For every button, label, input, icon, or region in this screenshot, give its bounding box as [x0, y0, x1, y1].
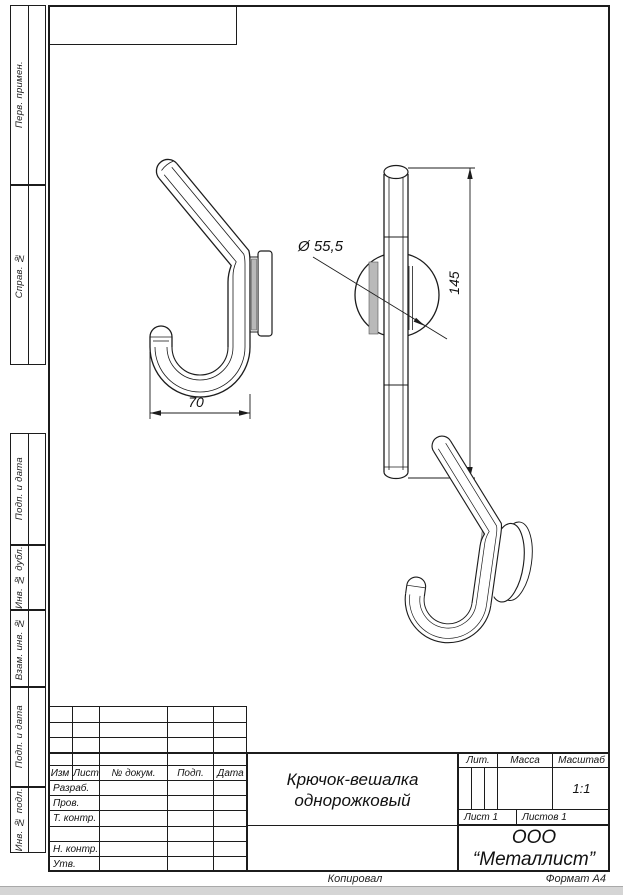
tb-cell	[168, 706, 214, 723]
tb-lit-label: Лит.	[466, 755, 489, 766]
tb-scale-header: Масштаб	[553, 753, 610, 768]
margin-empty-cell	[29, 788, 45, 852]
isometric-view	[400, 434, 548, 653]
tb-mass-value-cell	[498, 768, 553, 810]
dim-diameter-value: Ø 55,5	[297, 238, 344, 255]
front-view: 70	[150, 159, 272, 419]
tb-row-label: Пров.	[53, 798, 79, 809]
tb-cell	[168, 738, 214, 753]
tb-scale-label: Масштаб	[558, 755, 605, 766]
scale-value: 1:1	[572, 781, 590, 796]
tb-cell	[100, 781, 168, 796]
bottom-strip	[0, 886, 623, 895]
tb-cell	[214, 811, 247, 827]
tb-row-label: Утв.	[53, 859, 76, 870]
tb-cell	[48, 706, 73, 723]
tb-row-razrab: Разраб.	[48, 781, 100, 796]
plate-edge-shading	[369, 262, 378, 334]
tb-cell	[100, 827, 168, 842]
tb-cell	[100, 706, 168, 723]
tb-cell	[168, 796, 214, 811]
tb-cell	[214, 796, 247, 811]
tb-row-utv: Утв.	[48, 857, 100, 872]
company-line1: ООО	[512, 827, 556, 849]
tb-row-prov: Пров.	[48, 796, 100, 811]
tb-cell	[100, 738, 168, 753]
tb-header-izm: Изм	[48, 766, 73, 781]
sheet-value: Лист 1	[464, 812, 498, 823]
tb-cell	[168, 811, 214, 827]
part-name-cell: Крючок-вешалка однорожковый	[247, 753, 458, 826]
tb-cell	[214, 781, 247, 796]
sheets-value: Листов 1	[522, 812, 567, 823]
margin-label-cell: Инв. № подл.	[11, 788, 29, 852]
format-label: Формат А4	[470, 873, 606, 885]
dimension-diameter	[313, 257, 447, 339]
tb-lit-subcell	[485, 768, 498, 810]
dim-arrow	[150, 410, 161, 415]
tb-cell	[168, 723, 214, 738]
tb-row-label: Т. контр.	[53, 813, 96, 824]
tb-cell	[73, 723, 100, 738]
tb-cell	[214, 754, 247, 766]
tb-row-tkontr: Т. контр.	[48, 811, 100, 827]
tb-mass-label: Масса	[510, 755, 540, 766]
tb-header-data: Дата	[214, 766, 247, 781]
tb-row-nkontr: Н. контр.	[48, 842, 100, 857]
dim-arrow	[467, 168, 472, 179]
tb-lit-subcell	[472, 768, 485, 810]
margin-label: Подп. и дата	[14, 705, 25, 768]
dim-width-value: 70	[188, 394, 204, 410]
tb-cell	[214, 738, 247, 753]
tb-header-label: Изм	[51, 768, 70, 779]
tb-scale-value-cell: 1:1	[553, 768, 610, 810]
tb-cell	[168, 754, 214, 766]
tb-cell	[168, 842, 214, 857]
tb-cell	[168, 827, 214, 842]
margin-label: Инв. № подл.	[14, 788, 25, 851]
drawing-views: 70 Ø 55,5 145	[0, 0, 623, 705]
tb-cell	[100, 857, 168, 872]
tb-cell	[48, 754, 73, 766]
tb-cell	[73, 754, 100, 766]
tb-cell	[100, 723, 168, 738]
plate-shading	[252, 259, 257, 330]
tb-cell	[48, 723, 73, 738]
tb-header-list: Лист	[73, 766, 100, 781]
title-block: Изм Лист № докум. Подп. Дата Разраб. Про…	[48, 706, 610, 872]
tb-header-label: № докум.	[111, 768, 155, 779]
tb-row-label: Н. контр.	[53, 844, 98, 855]
tb-header-ndokum: № докум.	[100, 766, 168, 781]
tb-row-label: Разраб.	[53, 783, 89, 794]
company-cell: ООО “Металлист”	[458, 825, 610, 872]
tb-cell	[100, 811, 168, 827]
part-name-line1: Крючок-вешалка	[287, 769, 419, 790]
copied-label: Копировал	[270, 873, 440, 885]
designation-cell	[247, 825, 458, 872]
tb-cell	[214, 857, 247, 872]
part-name-line2: однорожковый	[294, 790, 410, 811]
tb-cell	[100, 754, 168, 766]
tb-header-label: Лист	[73, 768, 99, 779]
tb-cell	[100, 842, 168, 857]
plate-outline	[258, 251, 272, 336]
tb-header-label: Дата	[217, 768, 243, 779]
tb-cell	[214, 706, 247, 723]
tb-cell	[168, 857, 214, 872]
tb-header-podp: Подп.	[168, 766, 214, 781]
tb-cell	[48, 738, 73, 753]
hook-tip-cap	[150, 326, 172, 337]
tb-lit-subcell	[458, 768, 472, 810]
company-line2: “Металлист”	[473, 849, 595, 871]
tb-cell	[100, 796, 168, 811]
tb-header-label: Подп.	[177, 768, 204, 779]
tb-cell	[73, 738, 100, 753]
side-view: Ø 55,5 145	[297, 166, 475, 479]
dim-height-value: 145	[446, 271, 462, 295]
dim-arrow	[414, 318, 425, 326]
tb-cell	[73, 706, 100, 723]
tb-cell	[214, 842, 247, 857]
tb-sheets-cell: Листов 1	[517, 810, 610, 825]
tb-lit-header: Лит.	[458, 753, 498, 768]
tb-cell	[168, 781, 214, 796]
tb-row-empty	[48, 827, 100, 842]
bar-top-cap	[384, 166, 408, 179]
margin-box-inv-podl: Инв. № подл.	[10, 787, 46, 853]
tb-mass-header: Масса	[498, 753, 553, 768]
tb-cell	[214, 827, 247, 842]
dim-arrow	[239, 410, 250, 415]
tb-sheet-cell: Лист 1	[458, 810, 517, 825]
tb-cell	[214, 723, 247, 738]
